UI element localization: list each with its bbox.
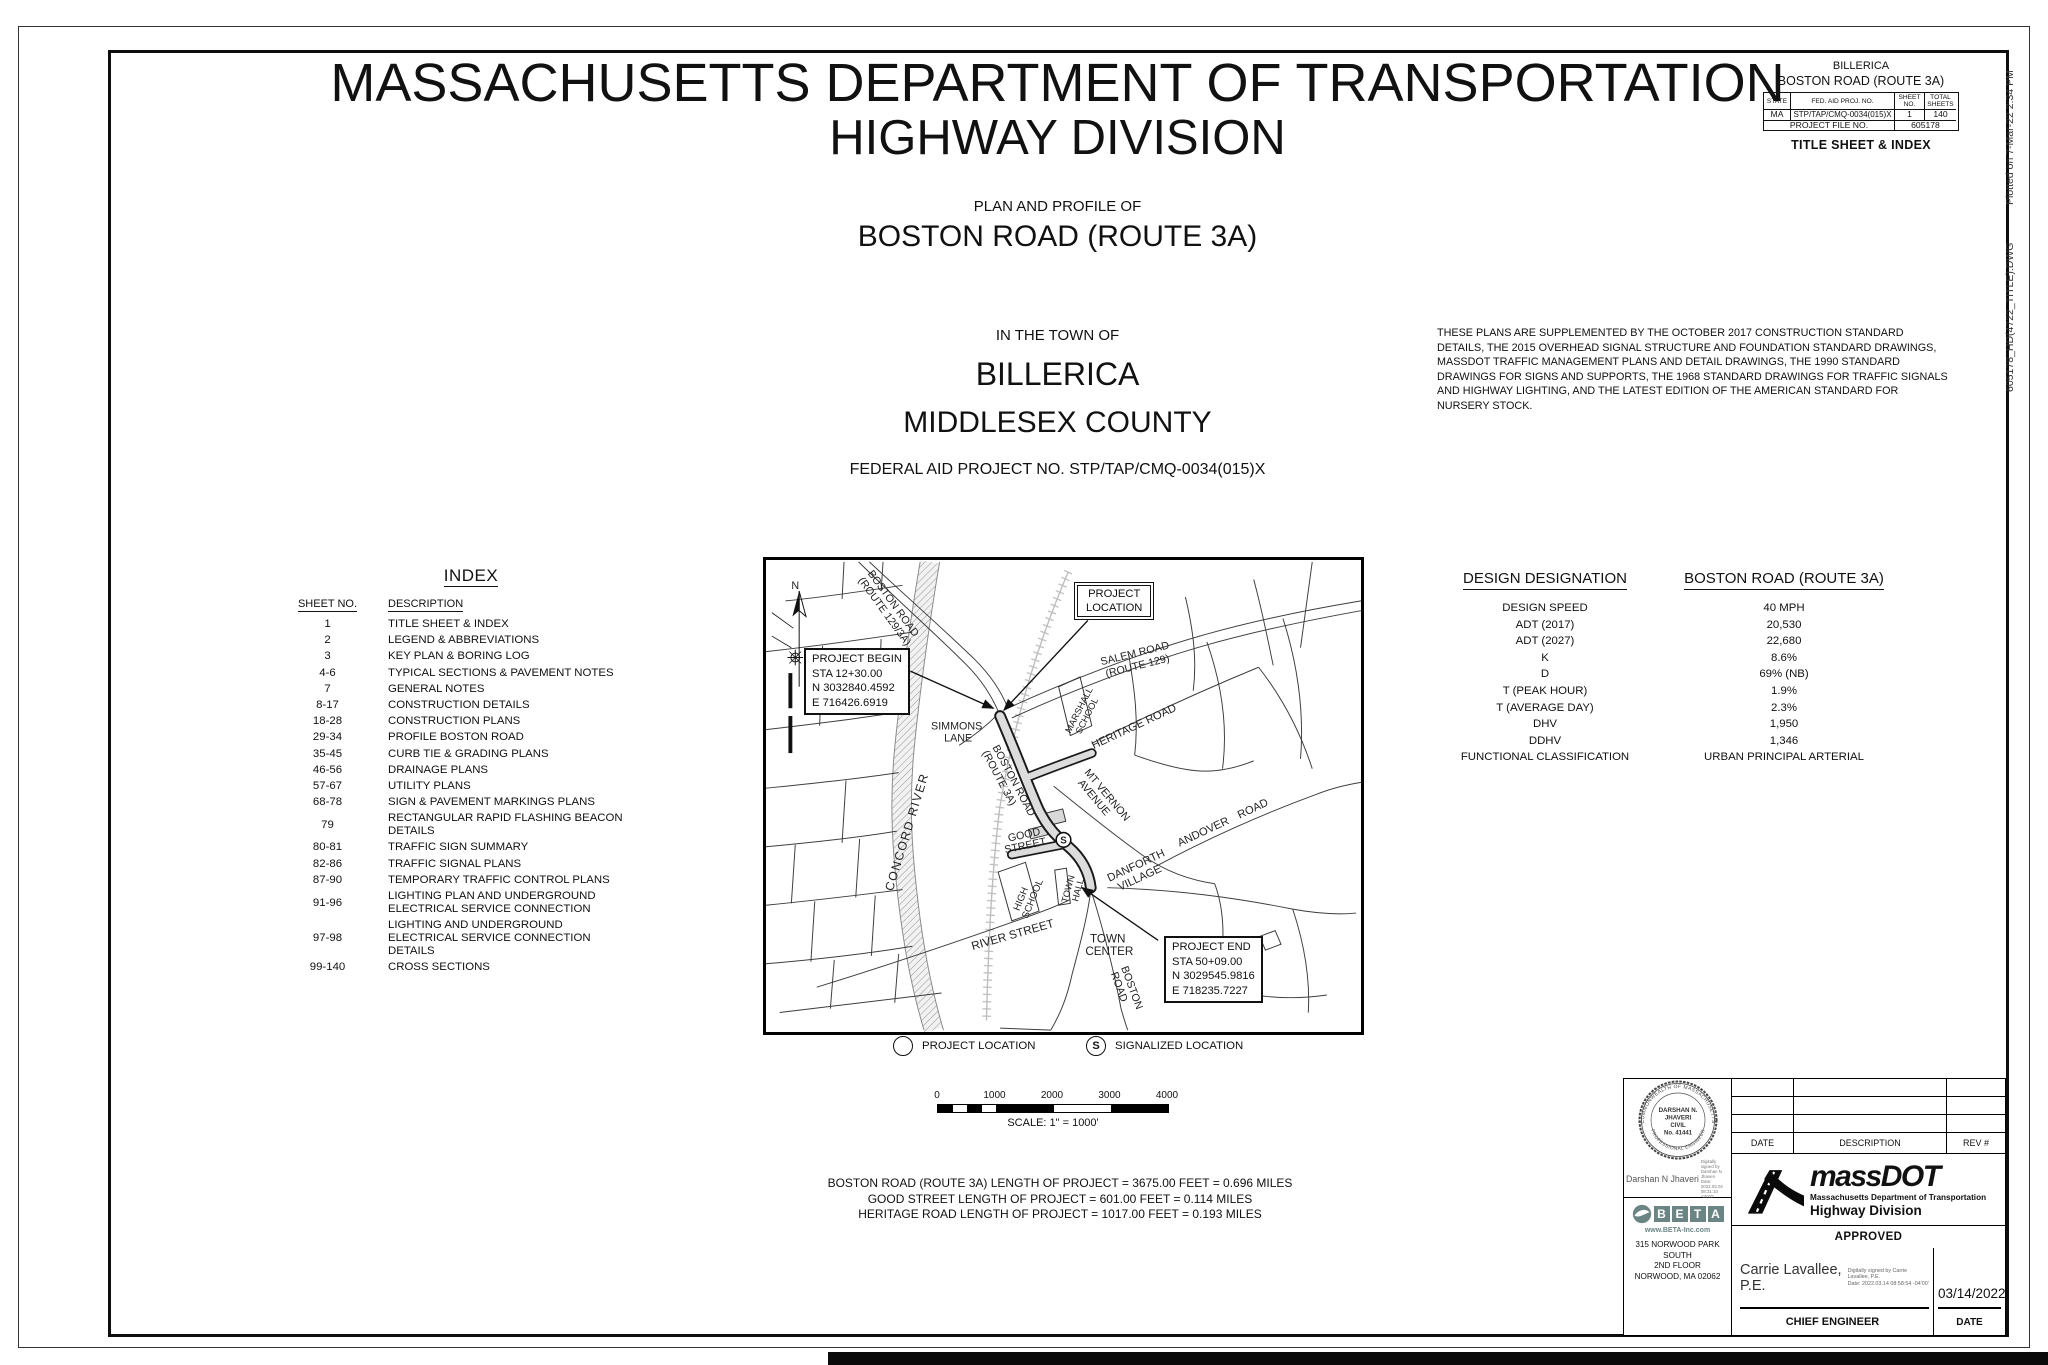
locus-map: N S [763, 557, 1364, 1035]
plot-file-name: 605178_HD(4722_TITLE).DWG [2004, 243, 2026, 392]
signature-labels-row: CHIEF ENGINEER DATE [1732, 1309, 2005, 1335]
index-row: 4-6TYPICAL SECTIONS & PAVEMENT NOTES [285, 667, 657, 680]
salem-road-label: SALEM ROAD (ROUTE 129) [1099, 639, 1176, 681]
title-block: COMMONWEALTH OF MASSACHUSETTS PROFESSION… [1623, 1078, 2006, 1336]
design-row: ADT (2027)22,680 [1440, 635, 1920, 647]
index-description: CONSTRUCTION PLANS [388, 715, 635, 728]
scale-bar-graphic [937, 1104, 1169, 1113]
project-end-line1: PROJECT END [1172, 940, 1255, 955]
index-description: RECTANGULAR RAPID FLASHING BEACON DETAIL… [388, 812, 635, 838]
col-total-sheets: TOTAL SHEETS [1925, 93, 1956, 110]
index-row: 68-78SIGN & PAVEMENT MARKINGS PLANS [285, 796, 657, 809]
index-description: CROSS SECTIONS [388, 961, 635, 974]
index-description: TRAFFIC SIGN SUMMARY [388, 841, 635, 854]
index-row: 82-86TRAFFIC SIGNAL PLANS [285, 858, 657, 871]
index-sheet-no: 79 [285, 819, 370, 832]
chief-digital-signature: Digitally signed by Carrie Lavallee, P.E… [1848, 1268, 1929, 1287]
simmons-lane-label: SIMMONS LANE [931, 721, 985, 745]
design-row: ADT (2017)20,530 [1440, 619, 1920, 631]
plot-stamp: 605178_HD(4722_TITLE).DWG Plotted on 7-M… [2004, 42, 2026, 392]
north-label: N [791, 580, 799, 592]
beta-letter-t: T [1690, 1206, 1706, 1222]
stamp-name1: DARSHAN N. [1658, 1107, 1697, 1114]
design-designation: DESIGN DESIGNATION BOSTON ROAD (ROUTE 3A… [1440, 570, 1920, 768]
chief-engineer-label: CHIEF ENGINEER [1732, 1309, 1933, 1335]
plan-type: PLAN AND PROFILE OF [110, 198, 2005, 215]
index-description: TYPICAL SECTIONS & PAVEMENT NOTES [388, 667, 635, 680]
project-begin-n: N 3032840.4592 [812, 681, 902, 696]
design-row: DHV1,950 [1440, 718, 1920, 730]
design-label: DHV [1440, 718, 1650, 730]
index-description: CONSTRUCTION DETAILS [388, 699, 635, 712]
stamp-number: No. 41441 [1663, 1131, 1692, 1137]
jhaveri-signature-row: Darshan N Jhaveri Digitally signed by Da… [1624, 1161, 1731, 1198]
heritage-road-label: HERITAGE ROAD [1090, 702, 1178, 752]
beta-logo: B E T A [1624, 1204, 1731, 1224]
project-location-icon [893, 1036, 913, 1056]
jhaveri-signature: Darshan N Jhaveri [1626, 1174, 1699, 1184]
project-end-callout: PROJECT END STA 50+09.00 N 3029545.9816 … [1164, 936, 1263, 1003]
stamp-name2: JHAVERI [1664, 1115, 1691, 1122]
approval-date-cell: 03/14/2022 [1933, 1248, 2005, 1309]
index-sheet-no: 82-86 [285, 858, 370, 871]
index-description: LEGEND & ABBREVIATIONS [388, 634, 635, 647]
corner-title-block: BILLERICA BOSTON ROAD (ROUTE 3A) STATE F… [1763, 60, 1959, 152]
index-row: 29-34PROFILE BOSTON ROAD [285, 731, 657, 744]
beta-address-line3: NORWOOD, MA 02062 [1624, 1272, 1731, 1283]
scale-ticks: 01000200030004000 [937, 1090, 1169, 1102]
index-description: PROFILE BOSTON ROAD [388, 731, 635, 744]
index-sheet-no: 99-140 [285, 961, 370, 974]
index-sheet-no: 80-81 [285, 841, 370, 854]
index-description: GENERAL NOTES [388, 683, 635, 696]
approval-date: 03/14/2022 [1938, 1286, 2001, 1309]
design-road: BOSTON ROAD (ROUTE 3A) [1650, 570, 1918, 587]
revision-row-empty [1732, 1115, 2005, 1133]
title-sheet-page: MASSACHUSETTS DEPARTMENT OF TRANSPORTATI… [0, 0, 2048, 1365]
title-block-right: DATE DESCRIPTION REV # massDOT Massachus… [1732, 1079, 2005, 1335]
legend-project-location: PROJECT LOCATION [893, 1036, 1036, 1056]
scale-tick: 0 [934, 1090, 940, 1101]
town-center-label: TOWN CENTER [1085, 932, 1133, 958]
high-school-label: HIGH SCHOOL [1010, 873, 1046, 920]
design-row: K8.6% [1440, 652, 1920, 664]
index-sheet-no: 8-17 [285, 699, 370, 712]
revision-header-row: DATE DESCRIPTION REV # [1732, 1133, 2005, 1154]
project-begin-line1: PROJECT BEGIN [812, 652, 902, 667]
stamp-discipline: CIVIL [1670, 1123, 1686, 1129]
index-sheet-no: 2 [285, 634, 370, 647]
index-description: SIGN & PAVEMENT MARKINGS PLANS [388, 796, 635, 809]
index-sheet-no: 35-45 [285, 748, 370, 761]
design-row: T (AVERAGE DAY)2.3% [1440, 702, 1920, 714]
design-value: 1.9% [1650, 685, 1918, 697]
index-sheet-no: 91-96 [285, 897, 370, 910]
index-row: 57-67UTILITY PLANS [285, 780, 657, 793]
index-description: TRAFFIC SIGNAL PLANS [388, 858, 635, 871]
supplemental-notes: THESE PLANS ARE SUPPLEMENTED BY THE OCTO… [1437, 326, 1949, 414]
project-begin-sta: STA 12+30.00 [812, 667, 902, 682]
design-value: 69% (NB) [1650, 668, 1918, 680]
scale-label: SCALE: 1" = 1000' [937, 1117, 1169, 1129]
project-file-no: 605178 [1895, 121, 1956, 130]
massdot-subtitle2: Highway Division [1810, 1204, 1986, 1218]
index-description: DRAINAGE PLANS [388, 764, 635, 777]
index-sheet-no: 97-98 [285, 932, 370, 945]
project-location-line1: PROJECT [1086, 587, 1142, 601]
federal-aid-project: FEDERAL AID PROJECT NO. STP/TAP/CMQ-0034… [110, 461, 2005, 479]
index-sheet-no: 68-78 [285, 796, 370, 809]
index-sheet-no: 87-90 [285, 874, 370, 887]
massdot-wordmark: massDOT [1810, 1162, 1986, 1192]
scale-tick: 1000 [983, 1090, 1005, 1101]
index-header-row: SHEET NO. DESCRIPTION [285, 598, 657, 610]
project-length-line: BOSTON ROAD (ROUTE 3A) LENGTH OF PROJECT… [760, 1176, 1360, 1192]
plot-stamp-gap [2004, 205, 2026, 243]
index-col-sheet: SHEET NO. [285, 598, 370, 610]
massdot-icon [1746, 1163, 1804, 1217]
signal-s: S [1060, 836, 1067, 847]
beta-url: www.BETA-Inc.com [1624, 1227, 1731, 1234]
legend-signalized-label: SIGNALIZED LOCATION [1115, 1040, 1243, 1052]
index-sheet-no: 7 [285, 683, 370, 696]
rev-col-date: DATE [1732, 1133, 1794, 1153]
beta-leaf-icon [1632, 1204, 1652, 1224]
project-end-e: E 718235.7227 [1172, 984, 1255, 999]
massdot-subtitle1: Massachusetts Department of Transportati… [1810, 1194, 1986, 1202]
index-description: LIGHTING PLAN AND UNDERGROUND ELECTRICAL… [388, 890, 635, 916]
beta-letter-b: B [1654, 1206, 1670, 1222]
locus-map-svg: N S [766, 560, 1361, 1032]
index-description: CURB TIE & GRADING PLANS [388, 748, 635, 761]
sheet-index: INDEX SHEET NO. DESCRIPTION 1TITLE SHEET… [285, 566, 657, 978]
index-row: 35-45CURB TIE & GRADING PLANS [285, 748, 657, 761]
index-row: 99-140CROSS SECTIONS [285, 961, 657, 974]
project-end-n: N 3029545.9816 [1172, 969, 1255, 984]
mt-vernon-label: MT VERNON AVENUE [1073, 767, 1134, 834]
approval-signature-area: Carrie Lavallee, P.E. Digitally signed b… [1732, 1248, 2005, 1309]
design-value: 20,530 [1650, 619, 1918, 631]
design-value: URBAN PRINCIPAL ARTERIAL [1650, 751, 1918, 763]
project-end-sta: STA 50+09.00 [1172, 955, 1255, 970]
bottom-black-bar [828, 1352, 2048, 1365]
project-length-notes: BOSTON ROAD (ROUTE 3A) LENGTH OF PROJECT… [760, 1176, 1360, 1223]
beta-address-line1: 315 NORWOOD PARK SOUTH [1624, 1240, 1731, 1261]
scale-tick: 3000 [1098, 1090, 1120, 1101]
sheet-title: TITLE SHEET & INDEX [1763, 138, 1959, 152]
design-label: DESIGN SPEED [1440, 602, 1650, 614]
index-sheet-no: 3 [285, 650, 370, 663]
corner-road: BOSTON ROAD (ROUTE 3A) [1763, 74, 1959, 88]
design-label: ADT (2027) [1440, 635, 1650, 647]
marshall-school-label: MARSHALL SCHOOL [1063, 683, 1104, 739]
beta-letter-a: A [1708, 1206, 1724, 1222]
design-header-row: DESIGN DESIGNATION BOSTON ROAD (ROUTE 3A… [1440, 570, 1920, 587]
plot-date: Plotted on 7-Mar-22 2:34 PM [2004, 70, 2026, 205]
index-description: LIGHTING AND UNDERGROUND ELECTRICAL SERV… [388, 919, 635, 958]
design-row: DESIGN SPEED40 MPH [1440, 602, 1920, 614]
rev-col-rev: REV # [1947, 1133, 2005, 1153]
index-description: TITLE SHEET & INDEX [388, 618, 635, 631]
beta-letter-e: E [1672, 1206, 1688, 1222]
project-length-line: HERITAGE ROAD LENGTH OF PROJECT = 1017.0… [760, 1207, 1360, 1223]
street-network [766, 562, 1361, 1030]
index-row: 91-96LIGHTING PLAN AND UNDERGROUND ELECT… [285, 890, 657, 916]
design-row: D69% (NB) [1440, 668, 1920, 680]
project-location-line2: LOCATION [1086, 601, 1142, 615]
index-description: TEMPORARY TRAFFIC CONTROL PLANS [388, 874, 635, 887]
pe-stamp: COMMONWEALTH OF MASSACHUSETTS PROFESSION… [1624, 1079, 1731, 1161]
index-row: 3KEY PLAN & BORING LOG [285, 650, 657, 663]
index-row: 97-98LIGHTING AND UNDERGROUND ELECTRICAL… [285, 919, 657, 958]
design-label: D [1440, 668, 1650, 680]
index-row: 80-81TRAFFIC SIGN SUMMARY [285, 841, 657, 854]
design-value: 22,680 [1650, 635, 1918, 647]
date-label: DATE [1933, 1309, 2005, 1335]
design-label: K [1440, 652, 1650, 664]
signal-symbol: S [1056, 833, 1071, 848]
project-begin-e: E 716426.6919 [812, 696, 902, 711]
index-row: 8-17CONSTRUCTION DETAILS [285, 699, 657, 712]
col-fed-aid: FED. AID PROJ. NO. [1791, 93, 1895, 110]
jhaveri-digital-signature: Digitally signed by Darshan N Jhaveri Da… [1701, 1159, 1729, 1199]
project-begin-callout: PROJECT BEGIN STA 12+30.00 N 3032840.459… [804, 648, 910, 715]
division-title: HIGHWAY DIVISION [110, 110, 2005, 166]
index-rows: 1TITLE SHEET & INDEX2LEGEND & ABBREVIATI… [285, 618, 657, 974]
project-length-line: GOOD STREET LENGTH OF PROJECT = 601.00 F… [760, 1192, 1360, 1208]
signalized-location-icon: S [1086, 1036, 1106, 1056]
index-row: 46-56DRAINAGE PLANS [285, 764, 657, 777]
design-rows: DESIGN SPEED40 MPHADT (2017)20,530ADT (2… [1440, 602, 1920, 763]
chief-engineer-signature: Carrie Lavallee, P.E. Digitally signed b… [1740, 1248, 1929, 1309]
index-sheet-no: 57-67 [285, 780, 370, 793]
beta-block: B E T A www.BETA-Inc.com 315 NORWOOD PAR… [1624, 1198, 1731, 1335]
design-label: ADT (2017) [1440, 619, 1650, 631]
revision-row-empty [1732, 1079, 2005, 1097]
design-value: 40 MPH [1650, 602, 1918, 614]
design-value: 8.6% [1650, 652, 1918, 664]
index-row: 7GENERAL NOTES [285, 683, 657, 696]
design-label: T (AVERAGE DAY) [1440, 702, 1650, 714]
legend-signalized-location: S SIGNALIZED LOCATION [1086, 1036, 1243, 1056]
fed-aid-table: STATE FED. AID PROJ. NO. SHEET NO. TOTAL… [1763, 92, 1959, 131]
index-col-description: DESCRIPTION [388, 598, 463, 610]
design-label: FUNCTIONAL CLASSIFICATION [1440, 751, 1650, 763]
index-row: 2LEGEND & ABBREVIATIONS [285, 634, 657, 647]
index-title: INDEX [285, 566, 657, 586]
boston-road-bottom-label: BOSTON ROAD [1107, 965, 1146, 1018]
project-location-box: PROJECT LOCATION [1074, 582, 1154, 620]
beta-address: 315 NORWOOD PARK SOUTH 2ND FLOOR NORWOOD… [1624, 1240, 1731, 1282]
road-title: BOSTON ROAD (ROUTE 3A) [110, 220, 2005, 254]
index-row: 79RECTANGULAR RAPID FLASHING BEACON DETA… [285, 812, 657, 838]
chief-engineer-name: Carrie Lavallee, P.E. [1740, 1262, 1842, 1294]
index-description: UTILITY PLANS [388, 780, 635, 793]
design-title: DESIGN DESIGNATION [1440, 570, 1650, 587]
design-row: DDHV1,346 [1440, 735, 1920, 747]
index-description: KEY PLAN & BORING LOG [388, 650, 635, 663]
design-value: 2.3% [1650, 702, 1918, 714]
revision-row-empty [1732, 1097, 2005, 1115]
state-value: MA [1764, 110, 1791, 120]
design-row: T (PEAK HOUR)1.9% [1440, 685, 1920, 697]
scale-tick: 4000 [1156, 1090, 1178, 1101]
design-label: T (PEAK HOUR) [1440, 685, 1650, 697]
design-label: DDHV [1440, 735, 1650, 747]
andover-road-label: ANDOVER ROAD [1176, 797, 1271, 850]
index-sheet-no: 4-6 [285, 667, 370, 680]
approved-label: APPROVED [1732, 1226, 2005, 1248]
corner-town: BILLERICA [1763, 60, 1959, 72]
col-sheet-no: SHEET NO. [1895, 93, 1925, 110]
index-sheet-no: 18-28 [285, 715, 370, 728]
design-value: 1,346 [1650, 735, 1918, 747]
beta-address-line2: 2ND FLOOR [1624, 1261, 1731, 1272]
design-value: 1,950 [1650, 718, 1918, 730]
project-file-label: PROJECT FILE NO. [1764, 121, 1895, 130]
index-row: 18-28CONSTRUCTION PLANS [285, 715, 657, 728]
index-sheet-no: 29-34 [285, 731, 370, 744]
legend-project-location-label: PROJECT LOCATION [922, 1040, 1036, 1052]
north-arrow: N [772, 580, 806, 753]
agency-title: MASSACHUSETTS DEPARTMENT OF TRANSPORTATI… [110, 52, 2005, 114]
index-row: 87-90TEMPORARY TRAFFIC CONTROL PLANS [285, 874, 657, 887]
rev-col-description: DESCRIPTION [1794, 1133, 1947, 1153]
title-block-left: COMMONWEALTH OF MASSACHUSETTS PROFESSION… [1624, 1079, 1732, 1335]
massdot-logo-block: massDOT Massachusetts Department of Tran… [1732, 1154, 2005, 1226]
scale-bar: 01000200030004000 SCALE: 1" = 1000' [937, 1090, 1169, 1129]
scale-tick: 2000 [1041, 1090, 1063, 1101]
design-row: FUNCTIONAL CLASSIFICATIONURBAN PRINCIPAL… [1440, 751, 1920, 763]
index-row: 1TITLE SHEET & INDEX [285, 618, 657, 631]
col-state: STATE [1764, 93, 1791, 110]
index-sheet-no: 46-56 [285, 764, 370, 777]
index-sheet-no: 1 [285, 618, 370, 631]
